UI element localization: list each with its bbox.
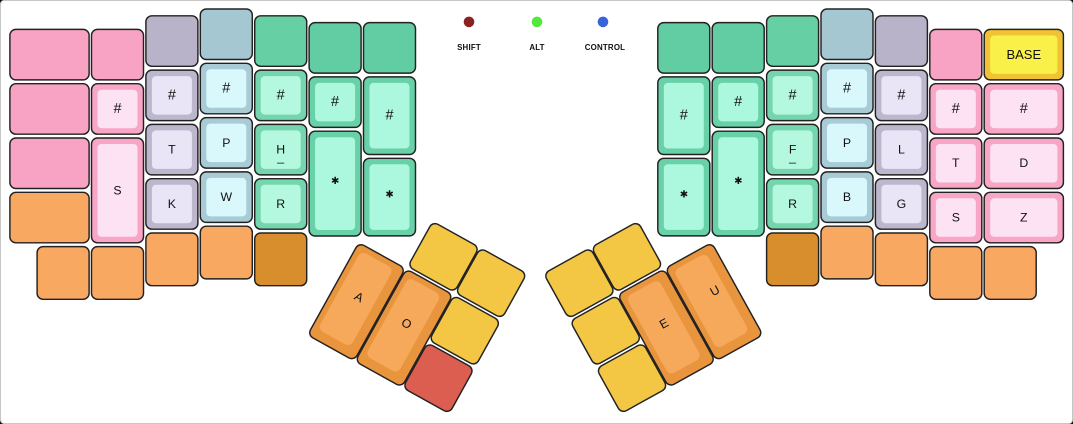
svg-text:W: W [220, 190, 232, 204]
svg-text:SHIFT: SHIFT [457, 43, 481, 52]
svg-text:#: # [331, 94, 339, 110]
svg-text:#: # [734, 94, 742, 110]
svg-text:S: S [952, 211, 960, 225]
svg-text:Z: Z [1020, 211, 1028, 225]
svg-text:#: # [277, 87, 285, 103]
svg-text:✱: ✱ [385, 190, 393, 201]
svg-text:#: # [385, 108, 393, 124]
svg-text:R: R [276, 197, 285, 211]
svg-text:_: _ [276, 150, 284, 164]
svg-text:#: # [789, 87, 797, 103]
svg-text:ALT: ALT [529, 43, 544, 52]
svg-text:K: K [168, 197, 177, 211]
svg-text:T: T [168, 143, 176, 157]
svg-text:G: G [897, 197, 907, 211]
svg-text:BASE: BASE [1006, 47, 1041, 62]
svg-text:#: # [1020, 101, 1028, 117]
svg-text:✱: ✱ [680, 190, 688, 201]
svg-text:#: # [952, 101, 960, 117]
svg-text:CONTROL: CONTROL [585, 43, 625, 52]
svg-text:✱: ✱ [331, 176, 339, 187]
svg-text:#: # [168, 87, 176, 103]
svg-text:B: B [843, 190, 851, 204]
svg-text:D: D [1019, 156, 1028, 170]
svg-text:P: P [222, 136, 230, 150]
svg-text:T: T [952, 156, 960, 170]
svg-text:#: # [843, 81, 851, 97]
svg-text:#: # [897, 87, 905, 103]
svg-text:S: S [113, 183, 121, 197]
svg-text:#: # [113, 101, 121, 117]
svg-text:#: # [222, 81, 230, 97]
svg-text:L: L [898, 143, 905, 157]
svg-text:#: # [680, 108, 688, 124]
svg-text:_: _ [788, 150, 796, 164]
svg-text:R: R [788, 197, 797, 211]
svg-text:P: P [843, 136, 851, 150]
svg-text:✱: ✱ [734, 176, 742, 187]
